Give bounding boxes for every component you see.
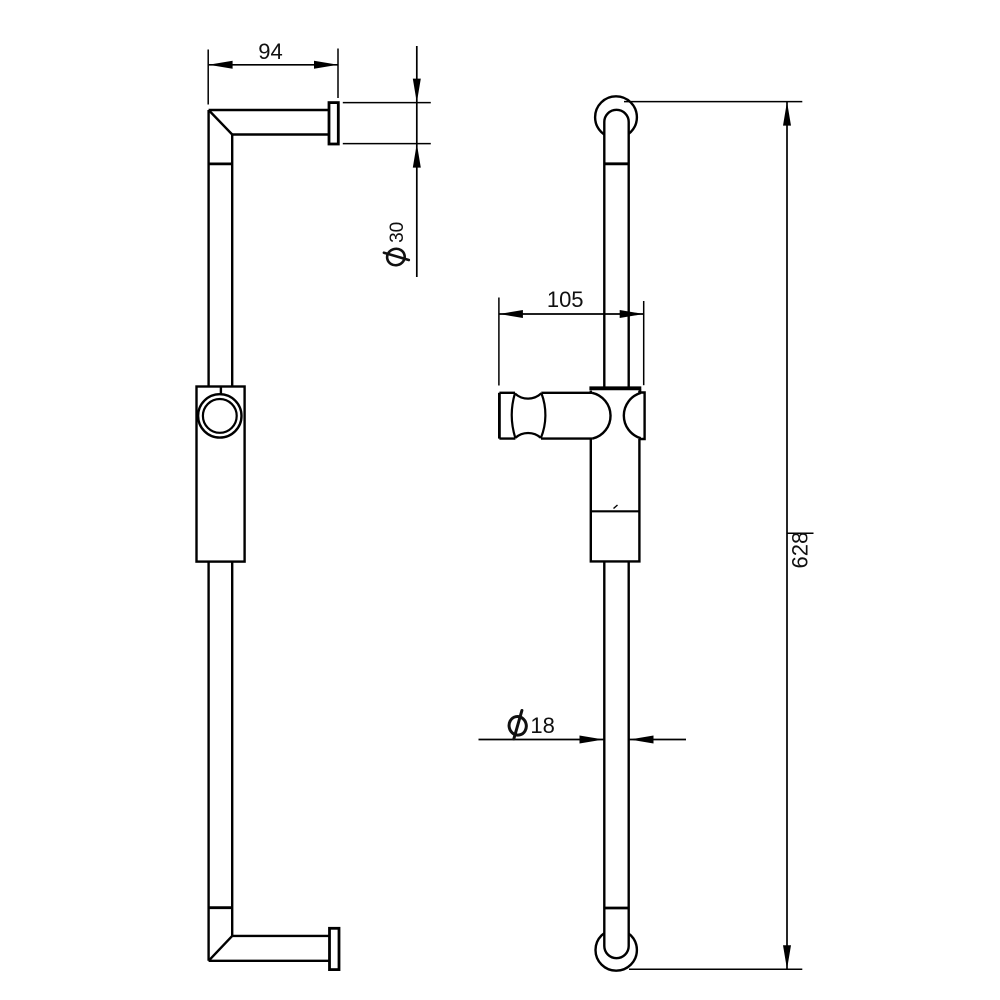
- svg-text:628: 628: [788, 532, 813, 569]
- svg-text:94: 94: [258, 39, 282, 64]
- svg-text:105: 105: [547, 287, 584, 312]
- svg-text:18: 18: [530, 713, 554, 738]
- svg-text:30: 30: [387, 222, 408, 243]
